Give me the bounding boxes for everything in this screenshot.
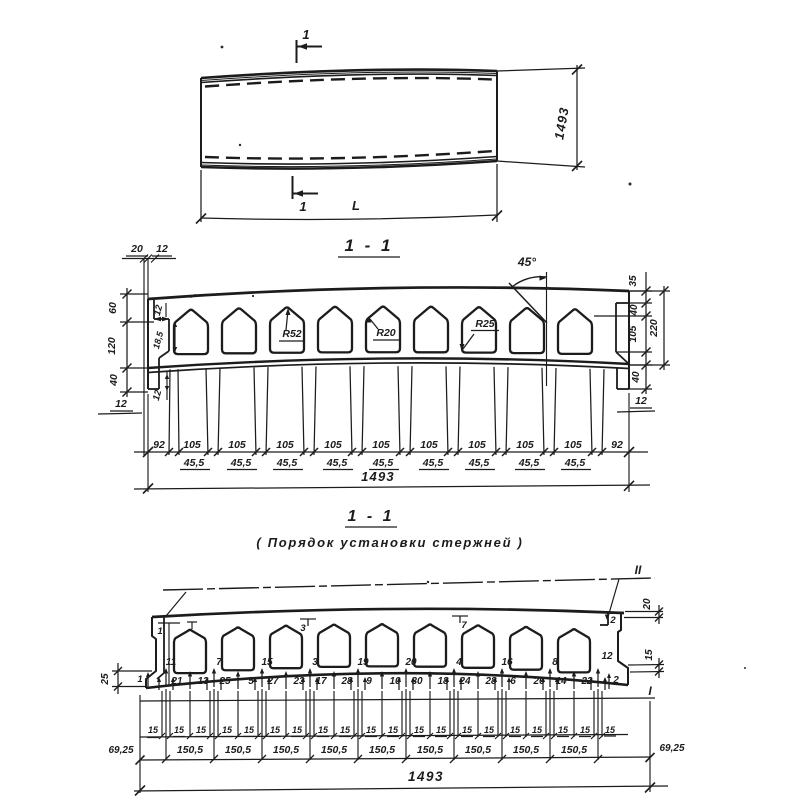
svg-text:105: 105 bbox=[228, 439, 246, 451]
svg-text:R52: R52 bbox=[282, 328, 301, 340]
svg-text:20: 20 bbox=[130, 243, 143, 255]
svg-text:69,25: 69,25 bbox=[659, 743, 684, 754]
svg-text:12: 12 bbox=[156, 243, 168, 255]
svg-text:45,5: 45,5 bbox=[468, 457, 490, 469]
svg-text:25: 25 bbox=[100, 673, 111, 686]
svg-text:150,5: 150,5 bbox=[561, 744, 587, 756]
svg-text:15: 15 bbox=[292, 725, 303, 735]
svg-text:45,5: 45,5 bbox=[518, 457, 540, 469]
svg-text:28: 28 bbox=[484, 676, 497, 687]
svg-text:1 - 1: 1 - 1 bbox=[344, 236, 393, 255]
svg-text:15: 15 bbox=[580, 725, 591, 735]
svg-text:3: 3 bbox=[312, 657, 318, 668]
svg-text:105: 105 bbox=[564, 439, 582, 451]
svg-text:40: 40 bbox=[108, 374, 120, 387]
svg-text:15: 15 bbox=[261, 657, 273, 668]
svg-text:1 - 1: 1 - 1 bbox=[347, 508, 394, 525]
svg-text:21: 21 bbox=[170, 676, 183, 687]
svg-text:92: 92 bbox=[153, 439, 165, 451]
svg-text:L: L bbox=[352, 198, 360, 213]
svg-text:7: 7 bbox=[216, 657, 222, 668]
svg-text:25: 25 bbox=[218, 676, 231, 687]
svg-text:30: 30 bbox=[411, 676, 423, 687]
svg-text:15: 15 bbox=[484, 725, 495, 735]
svg-text:19: 19 bbox=[357, 657, 369, 668]
svg-text:150,5: 150,5 bbox=[225, 744, 251, 756]
svg-text:7: 7 bbox=[461, 620, 467, 631]
svg-text:45°: 45° bbox=[517, 255, 536, 269]
svg-text:2: 2 bbox=[612, 675, 619, 686]
svg-text:45,5: 45,5 bbox=[230, 457, 252, 469]
svg-text:150,5: 150,5 bbox=[369, 744, 395, 756]
svg-text:15: 15 bbox=[340, 725, 351, 735]
svg-text:69,25: 69,25 bbox=[108, 745, 133, 756]
svg-text:15: 15 bbox=[414, 725, 425, 735]
svg-text:1493: 1493 bbox=[361, 469, 395, 484]
svg-text:45,5: 45,5 bbox=[422, 457, 444, 469]
svg-text:12: 12 bbox=[601, 651, 613, 662]
svg-text:17: 17 bbox=[315, 676, 327, 687]
svg-text:1: 1 bbox=[137, 674, 142, 685]
svg-text:24: 24 bbox=[458, 676, 471, 687]
svg-text:105: 105 bbox=[372, 439, 390, 451]
svg-text:15: 15 bbox=[366, 725, 377, 735]
svg-text:26: 26 bbox=[532, 676, 545, 687]
svg-text:9: 9 bbox=[366, 676, 372, 687]
svg-text:105: 105 bbox=[183, 439, 201, 451]
svg-text:22: 22 bbox=[580, 676, 593, 687]
svg-text:45,5: 45,5 bbox=[276, 457, 298, 469]
svg-text:12: 12 bbox=[115, 398, 127, 410]
svg-text:150,5: 150,5 bbox=[321, 744, 347, 756]
svg-text:92: 92 bbox=[611, 439, 623, 451]
svg-text:( Порядок установки стержн: ( Порядок установки стержней ) bbox=[256, 535, 523, 550]
svg-text:15: 15 bbox=[644, 649, 655, 661]
svg-text:105: 105 bbox=[516, 439, 534, 451]
svg-text:5: 5 bbox=[248, 676, 254, 687]
svg-text:11: 11 bbox=[166, 657, 177, 668]
svg-text:20: 20 bbox=[404, 657, 417, 668]
svg-text:16: 16 bbox=[501, 657, 513, 668]
svg-text:15: 15 bbox=[318, 725, 329, 735]
svg-text:45,5: 45,5 bbox=[564, 457, 586, 469]
svg-text:120: 120 bbox=[106, 337, 118, 355]
svg-text:2: 2 bbox=[609, 615, 616, 626]
svg-text:15: 15 bbox=[510, 725, 521, 735]
svg-text:28: 28 bbox=[340, 676, 353, 687]
svg-text:45,5: 45,5 bbox=[372, 457, 394, 469]
svg-text:15: 15 bbox=[270, 725, 281, 735]
svg-text:15: 15 bbox=[244, 725, 255, 735]
svg-text:45,5: 45,5 bbox=[326, 457, 348, 469]
svg-text:15: 15 bbox=[388, 725, 399, 735]
svg-text:15: 15 bbox=[196, 725, 207, 735]
svg-text:R20: R20 bbox=[376, 327, 395, 339]
svg-text:1493: 1493 bbox=[408, 769, 444, 784]
svg-text:105: 105 bbox=[276, 439, 294, 451]
svg-text:15: 15 bbox=[436, 725, 447, 735]
svg-text:12: 12 bbox=[635, 395, 647, 407]
svg-text:150,5: 150,5 bbox=[417, 744, 443, 756]
svg-text:20: 20 bbox=[642, 598, 653, 611]
svg-text:15: 15 bbox=[222, 725, 233, 735]
svg-text:105: 105 bbox=[420, 439, 438, 451]
svg-text:3: 3 bbox=[300, 623, 306, 634]
svg-text:15: 15 bbox=[462, 725, 473, 735]
svg-text:15: 15 bbox=[532, 725, 543, 735]
svg-text:27: 27 bbox=[266, 676, 279, 687]
svg-text:15: 15 bbox=[174, 725, 185, 735]
svg-text:105: 105 bbox=[628, 325, 639, 342]
svg-text:105: 105 bbox=[324, 439, 342, 451]
svg-text:1: 1 bbox=[302, 27, 309, 42]
svg-text:6: 6 bbox=[510, 676, 516, 687]
svg-text:13: 13 bbox=[197, 676, 209, 687]
svg-text:60: 60 bbox=[107, 302, 119, 314]
svg-text:220: 220 bbox=[648, 319, 660, 338]
svg-text:1: 1 bbox=[299, 199, 306, 214]
svg-text:8: 8 bbox=[552, 657, 558, 668]
svg-text:150,5: 150,5 bbox=[465, 744, 491, 756]
svg-text:23: 23 bbox=[292, 676, 305, 687]
svg-text:R25: R25 bbox=[475, 318, 494, 330]
svg-text:40: 40 bbox=[631, 371, 642, 384]
svg-text:150,5: 150,5 bbox=[273, 744, 299, 756]
svg-text:1: 1 bbox=[157, 626, 162, 637]
svg-text:15: 15 bbox=[605, 725, 616, 735]
svg-text:150,5: 150,5 bbox=[513, 744, 539, 756]
svg-text:14: 14 bbox=[555, 676, 567, 687]
svg-text:4: 4 bbox=[455, 657, 462, 668]
svg-text:40: 40 bbox=[629, 304, 640, 317]
svg-text:45,5: 45,5 bbox=[183, 457, 205, 469]
svg-text:10: 10 bbox=[389, 676, 401, 687]
svg-text:II: II bbox=[635, 563, 642, 577]
svg-text:105: 105 bbox=[468, 439, 486, 451]
svg-text:18: 18 bbox=[437, 676, 449, 687]
svg-text:150,5: 150,5 bbox=[177, 744, 203, 756]
svg-text:15: 15 bbox=[148, 725, 159, 735]
svg-text:35: 35 bbox=[628, 275, 639, 287]
svg-text:15: 15 bbox=[558, 725, 569, 735]
